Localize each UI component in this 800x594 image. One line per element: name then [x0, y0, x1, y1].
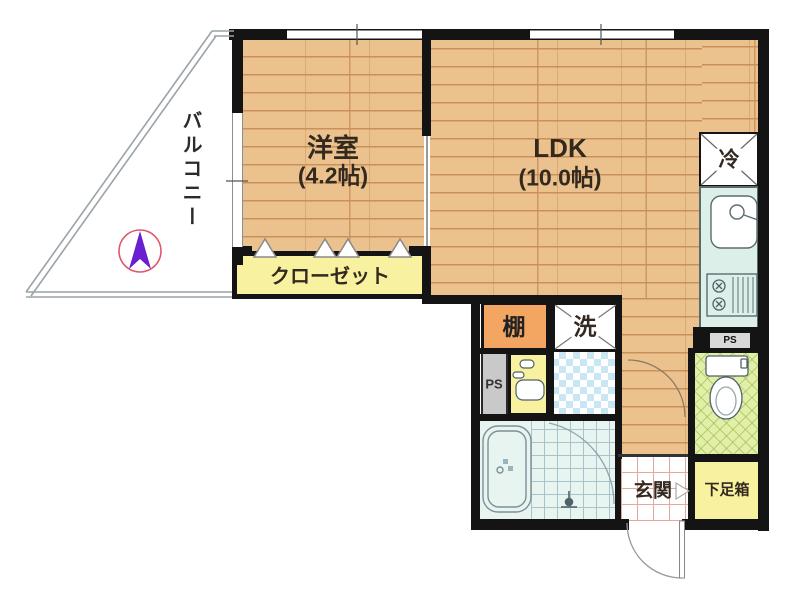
floor-plan: バルコニー 洋室 (4.2帖) LDK (10.0帖) クローゼット 冷 棚 洗… — [0, 0, 800, 594]
balcony-label: バルコニー — [176, 110, 205, 260]
closet-doors-icon — [254, 239, 411, 257]
refrigerator-label: 冷 — [717, 149, 742, 172]
door-arc-bathroom — [549, 423, 614, 504]
closet-label: クローゼット — [270, 267, 390, 287]
ldk-label: LDK — [533, 135, 586, 161]
entrance-door — [627, 521, 685, 578]
vanity-basin-icon — [513, 360, 544, 400]
sink-icon — [711, 196, 758, 248]
entrance-label: 玄関 — [634, 482, 672, 501]
western-room-size: (4.2帖) — [298, 165, 368, 188]
shoe-box-label: 下足箱 — [704, 483, 749, 498]
stove-icon — [707, 274, 757, 316]
compass-icon — [119, 230, 161, 272]
bathtub-icon — [483, 426, 531, 512]
toilet-icon — [706, 356, 748, 419]
pipe-space-left-label: PS — [485, 378, 502, 391]
pipe-space-right-label: PS — [723, 336, 736, 346]
western-room-label: 洋室 — [307, 135, 359, 161]
washer-label: 洗 — [572, 316, 599, 339]
shelf-label: 棚 — [503, 316, 526, 339]
symbol-overlay — [0, 0, 800, 594]
door-arc-hallway — [628, 360, 685, 417]
ldk-size: (10.0帖) — [518, 167, 601, 190]
entrance-step-icon — [676, 483, 689, 499]
shower-icon — [561, 491, 577, 507]
